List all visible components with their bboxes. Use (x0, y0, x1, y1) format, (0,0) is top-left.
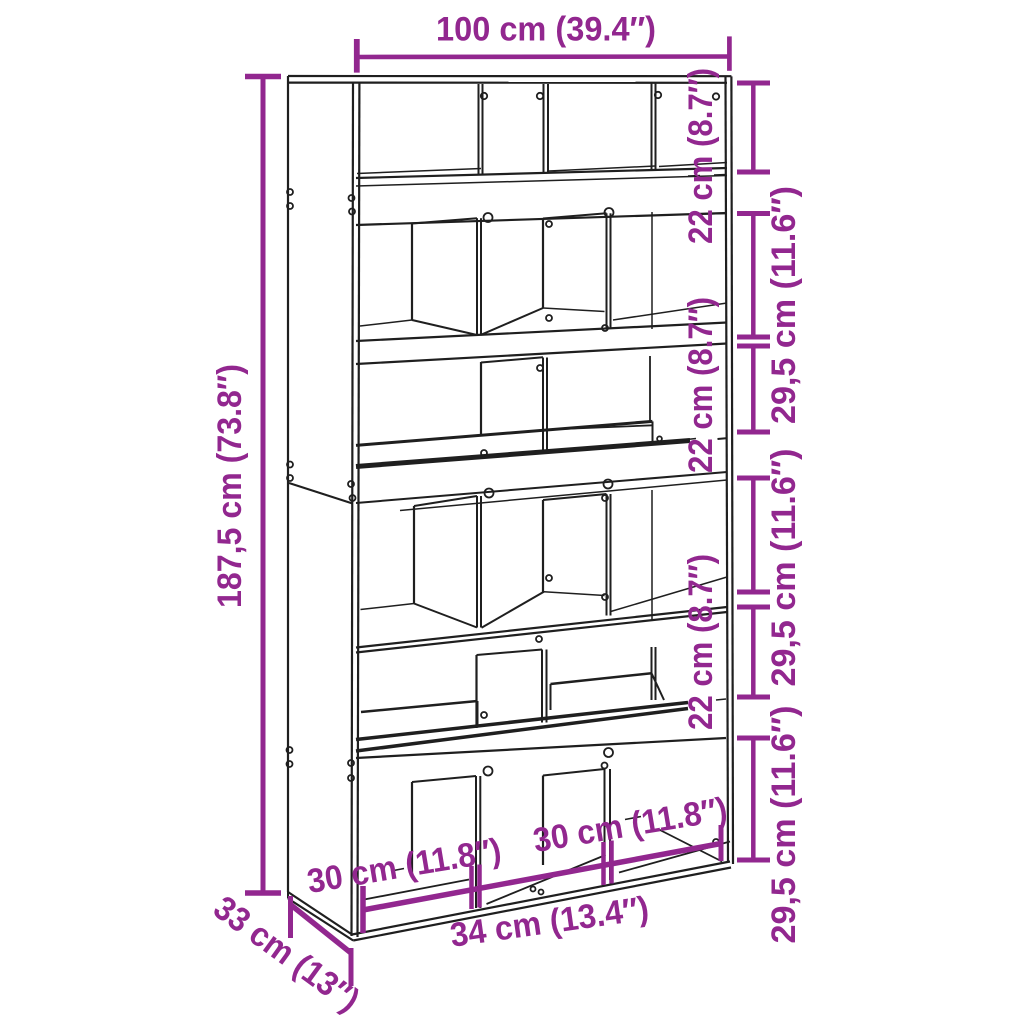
svg-text:22 cm (8.7″): 22 cm (8.7″) (682, 554, 720, 730)
svg-text:100 cm (39.4″): 100 cm (39.4″) (436, 11, 656, 49)
svg-text:29,5 cm (11.6″): 29,5 cm (11.6″) (765, 186, 803, 424)
svg-text:187,5 cm (73.8″): 187,5 cm (73.8″) (211, 364, 249, 608)
svg-text:29,5 cm (11.6″): 29,5 cm (11.6″) (765, 706, 803, 944)
svg-text:29,5 cm (11.6″): 29,5 cm (11.6″) (765, 449, 803, 687)
svg-text:22 cm (8.7″): 22 cm (8.7″) (682, 297, 720, 473)
svg-text:22 cm (8.7″): 22 cm (8.7″) (682, 68, 720, 244)
